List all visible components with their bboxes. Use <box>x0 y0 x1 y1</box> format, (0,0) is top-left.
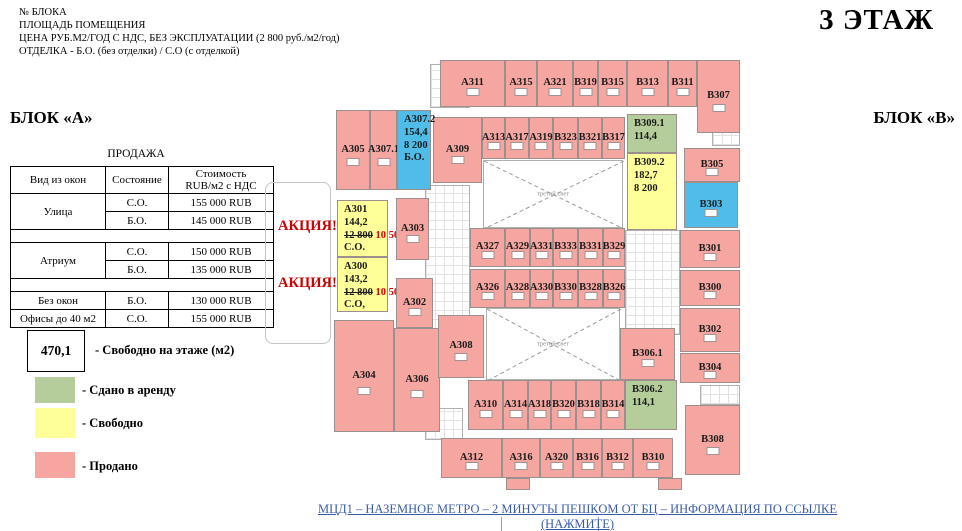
room-В306.1: В306.1 <box>620 328 675 380</box>
room-В316: В316 <box>573 438 602 478</box>
room-А312: А312 <box>441 438 502 478</box>
room-В318: В318 <box>576 380 601 430</box>
room-В303: В303 <box>684 182 738 228</box>
room-А300: А300143,212 800 10 500С.О, <box>337 257 388 312</box>
room-В313: В313 <box>627 60 668 107</box>
room-А303: А303 <box>396 198 429 260</box>
room-А305: А305 <box>336 110 370 190</box>
room-А330: А330 <box>530 269 553 308</box>
room-В317: В317 <box>602 117 625 159</box>
room-А301: А301144,212 800 10 500С.О. <box>337 200 388 257</box>
room-А321: А321 <box>537 60 573 107</box>
room-А306: А306 <box>394 328 440 432</box>
room-В326: В326 <box>603 269 625 308</box>
room-stair-tab <box>506 478 530 490</box>
room-В319: В319 <box>573 60 598 107</box>
room-А307.1: А307.1 <box>370 110 397 190</box>
room-В323: В323 <box>553 117 578 159</box>
room-А304: А304 <box>334 320 394 432</box>
room-А319: А319 <box>529 117 553 159</box>
room-В309.2: В309.2182,78 200 <box>627 153 677 230</box>
room-А315: А315 <box>505 60 537 107</box>
atrium-label: третий свет <box>537 191 569 198</box>
room-В328: В328 <box>578 269 603 308</box>
room-А309: А309 <box>433 117 482 183</box>
room-В307: В307 <box>697 60 740 133</box>
room-В311: В311 <box>668 60 697 107</box>
room-А318: А318 <box>528 380 551 430</box>
room-А310: А310 <box>468 380 503 430</box>
room-А328: А328 <box>505 269 530 308</box>
atrium-area: третий свет <box>483 160 623 228</box>
room-В331: В331 <box>578 228 603 267</box>
floorplan-page: № БЛОКА ПЛОЩАДЬ ПОМЕЩЕНИЯ ЦЕНА РУБ.М2/ГО… <box>0 0 962 531</box>
room-В304: В304 <box>680 353 740 383</box>
room-В329: В329 <box>603 228 625 267</box>
atrium-label: третий свет <box>537 341 569 348</box>
room-В306.2: В306.2114,1 <box>625 380 677 430</box>
room-А311: А311 <box>440 60 505 107</box>
room-В315: В315 <box>598 60 627 107</box>
metro-link[interactable]: МЦД1 – НАЗЕМНОЕ МЕТРО – 2 МИНУТЫ ПЕШКОМ … <box>290 502 865 531</box>
room-В312: В312 <box>602 438 633 478</box>
promo-label-a300: АКЦИЯ! <box>278 275 337 292</box>
room-В301: В301 <box>680 230 740 268</box>
atrium-area: третий свет <box>486 308 620 380</box>
box-structure <box>265 182 331 344</box>
room-В320: В320 <box>551 380 576 430</box>
core-structure <box>625 230 680 335</box>
room-А308: А308 <box>438 315 484 378</box>
room-А316: А316 <box>502 438 540 478</box>
stair-structure <box>700 385 740 405</box>
room-В300: В300 <box>680 270 740 306</box>
room-В310: В310 <box>633 438 673 478</box>
room-В321: В321 <box>578 117 602 159</box>
room-В314: В314 <box>601 380 625 430</box>
room-А302: А302 <box>396 278 433 328</box>
room-А327: А327 <box>470 228 505 267</box>
room-В309.1: В309.1114,4 <box>627 114 677 153</box>
floorplan: третий светтретий светА311А315А321В319В3… <box>0 0 962 531</box>
room-А317: А317 <box>505 117 529 159</box>
room-А314: А314 <box>503 380 528 430</box>
room-В333: В333 <box>553 228 578 267</box>
room-В302: В302 <box>680 308 740 352</box>
room-В330: В330 <box>553 269 578 308</box>
promo-label-a301: АКЦИЯ! <box>278 218 337 235</box>
room-А313: А313 <box>482 117 505 159</box>
room-А329: А329 <box>505 228 530 267</box>
room-А320: А320 <box>540 438 573 478</box>
room-В305: В305 <box>684 148 740 182</box>
room-А326: А326 <box>470 269 505 308</box>
room-А307.2: А307.2154,48 200Б.О. <box>397 110 431 190</box>
room-stair-tab <box>658 478 682 490</box>
room-А331: А331 <box>530 228 553 267</box>
room-В308: В308 <box>685 405 740 475</box>
